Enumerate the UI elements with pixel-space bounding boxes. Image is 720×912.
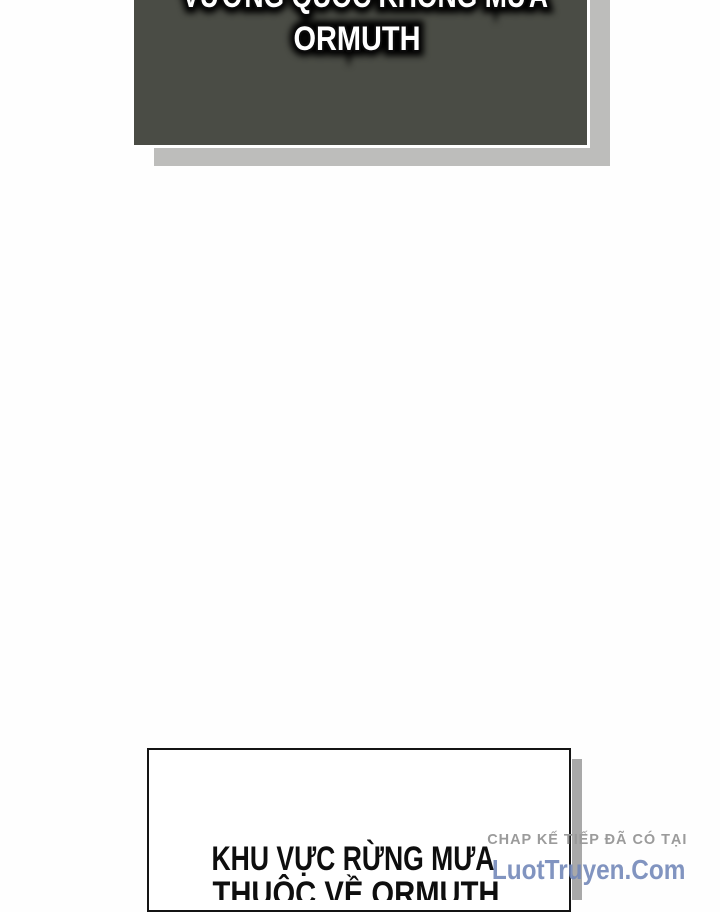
svg-text:VƯƠNG QUỐC KHÔNG MƯA: VƯƠNG QUỐC KHÔNG MƯA [182,0,548,15]
svg-text:THUỘC VỀ ORMUTH: THUỘC VỀ ORMUTH [213,873,500,900]
svg-text:ORMUTH: ORMUTH [294,20,421,58]
svg-text:KHU VỰC RỪNG MƯA: KHU VỰC RỪNG MƯA [212,838,495,878]
